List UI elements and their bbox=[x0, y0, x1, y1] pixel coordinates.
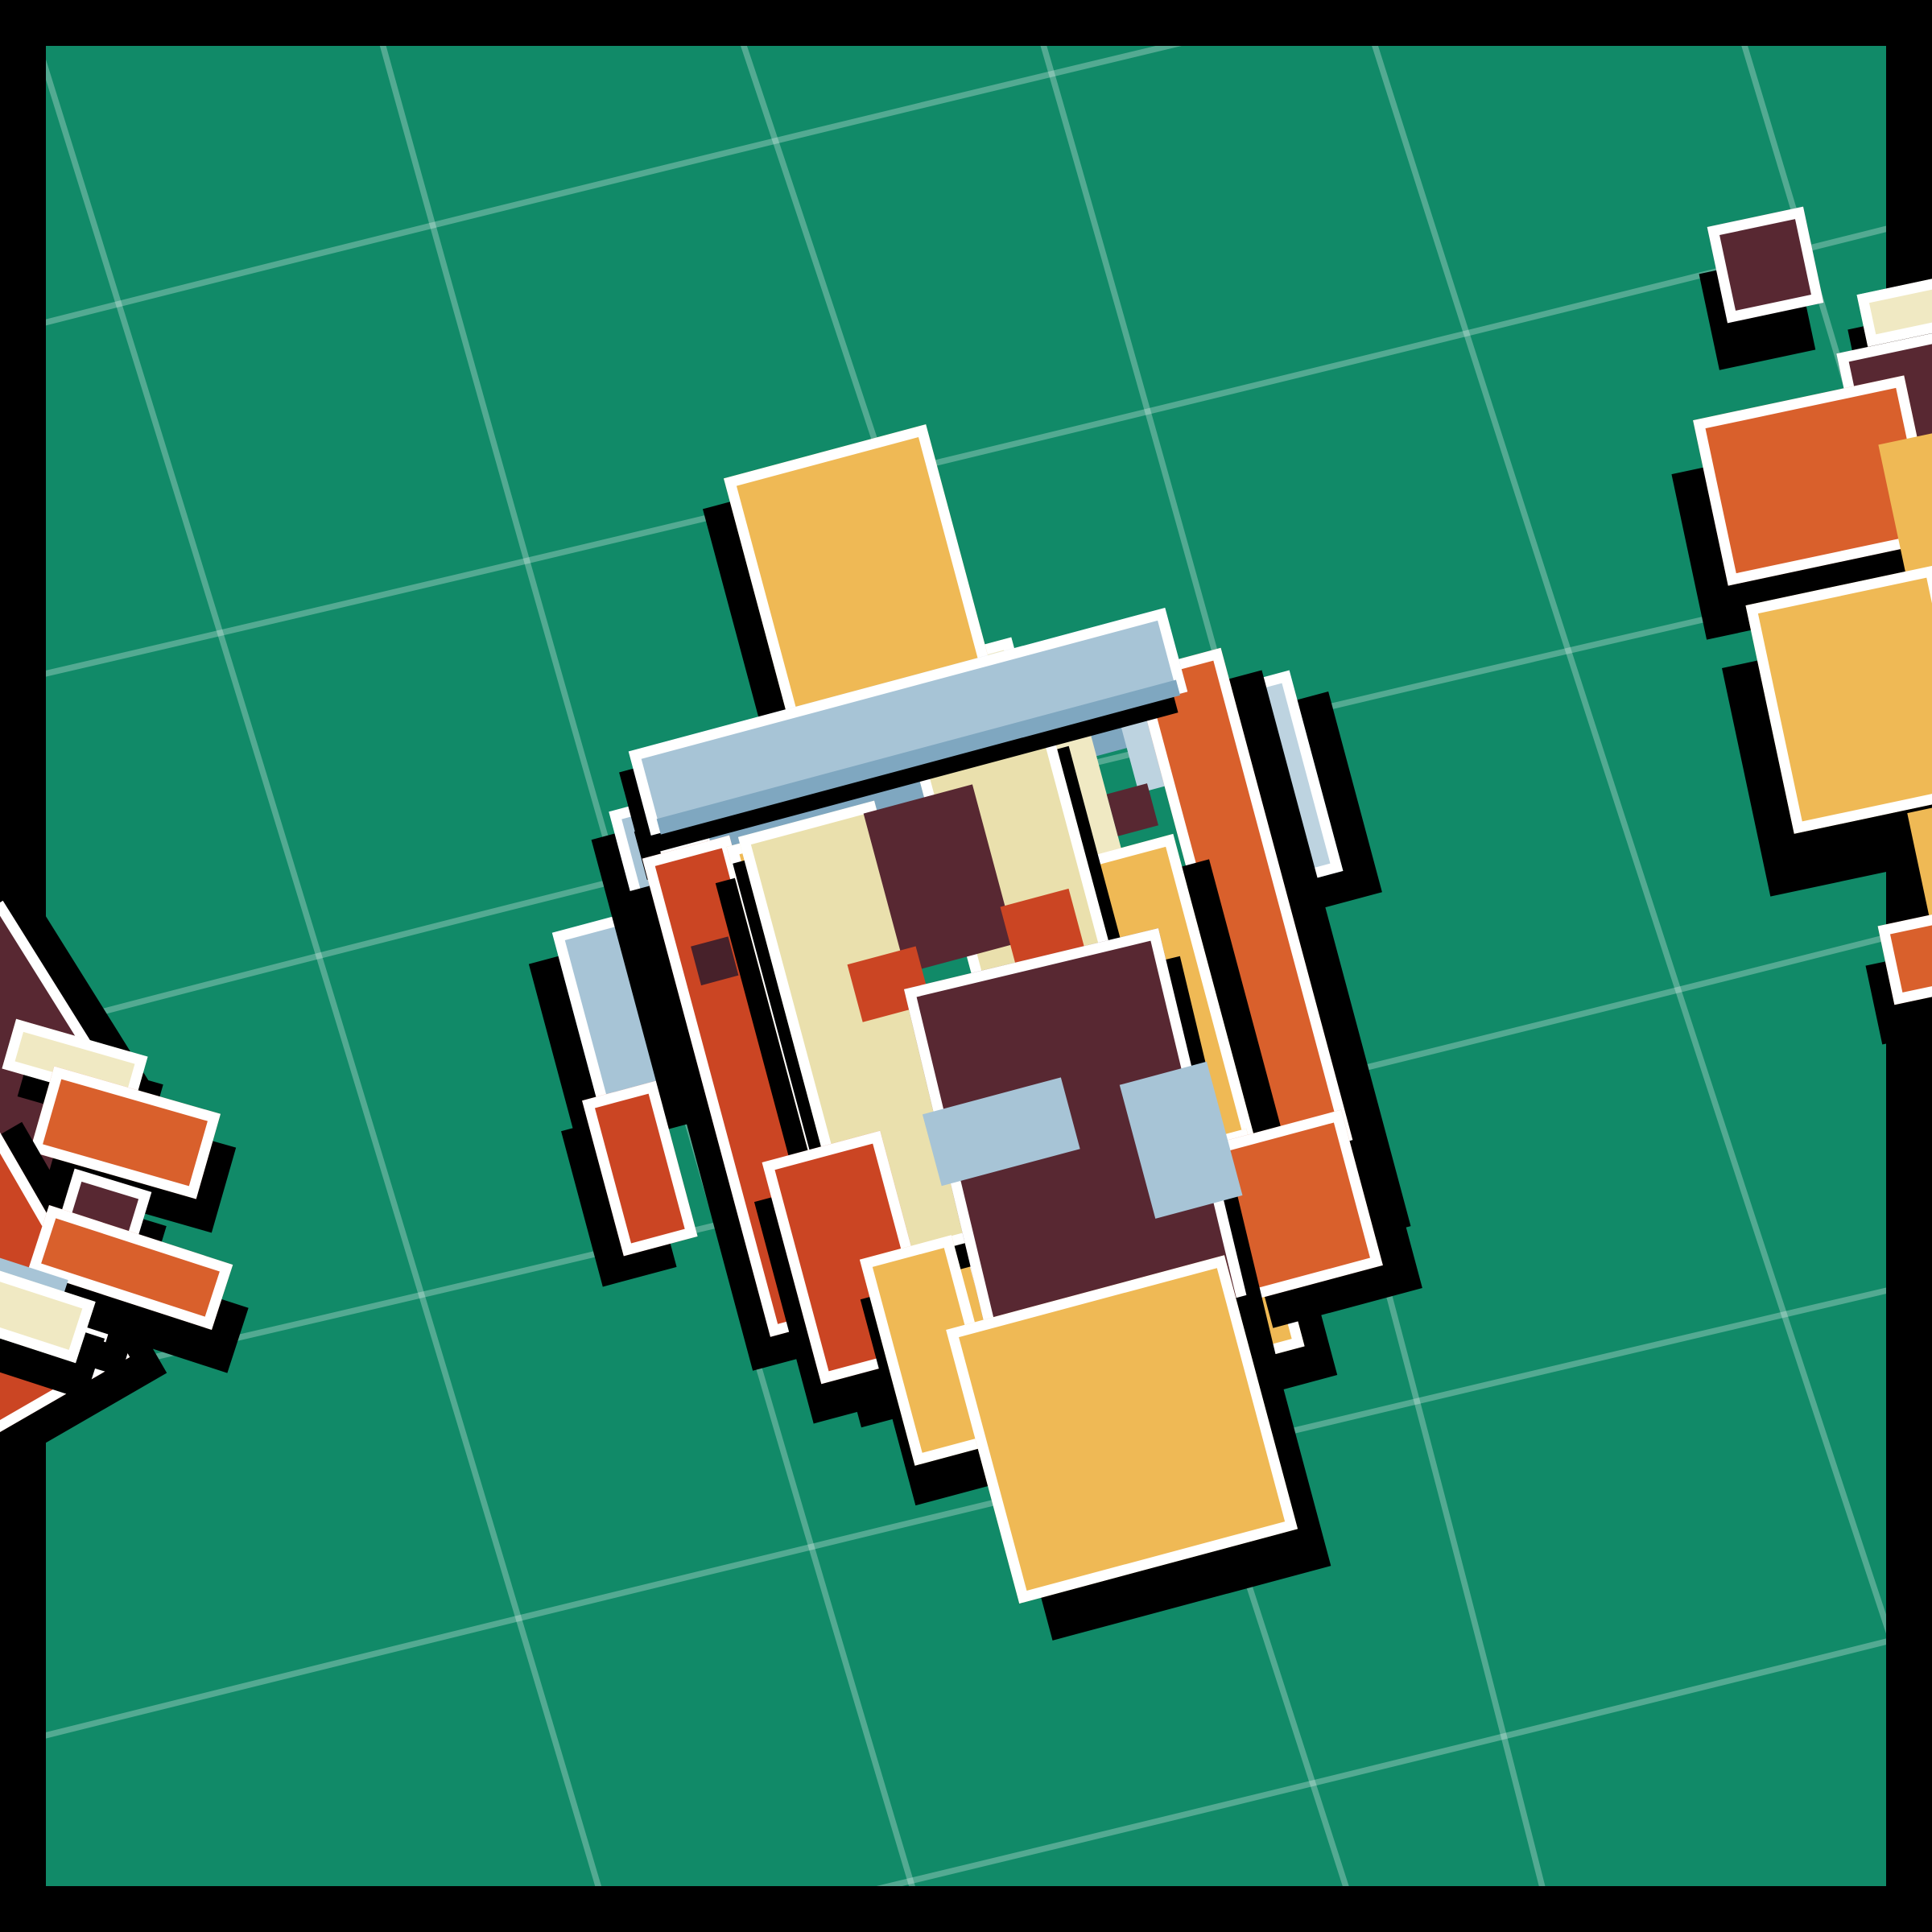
right-orange-low bbox=[1878, 911, 1932, 1005]
right-maroon-square bbox=[1707, 207, 1824, 324]
sprite-right-figure[interactable] bbox=[1690, 145, 1932, 1030]
right-mustard-big bbox=[1745, 565, 1932, 834]
grid-line bbox=[46, 46, 1886, 334]
sprite-left-debris[interactable] bbox=[0, 918, 258, 1368]
